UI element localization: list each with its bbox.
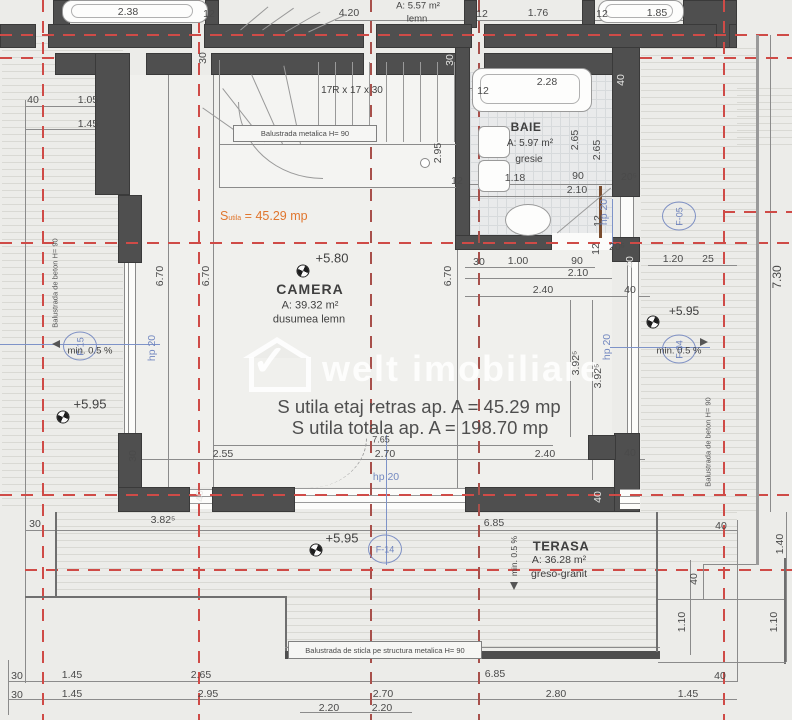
axis-horizontal [0,494,792,496]
dim-label: 2.55 [213,449,233,460]
dim-label: 2.10 [568,268,588,279]
dim-label: 2.95 [433,143,444,163]
dim-label: 40 [593,491,604,503]
level-label-camera: +5.80 [316,252,349,265]
stair-edge [219,60,220,188]
dim-label: 30 [29,519,41,530]
sink [505,204,551,236]
railing-left-label: Balustrada de beton H= 90 [51,238,59,327]
dim-label: 2.38 [118,7,138,18]
dim-line [786,512,787,662]
window-tag-label: F-05 [674,207,684,226]
terrace-edge [784,558,786,664]
terasa-finish: greso-granit [531,569,587,580]
dim-label: 2.65 [570,130,581,150]
dim-label: 1.05 [78,95,98,106]
dim-line [213,75,214,490]
dim-label: 7.65 [372,436,390,445]
dim-label: 2.40 [535,449,555,460]
dim-line [335,20,470,21]
dim-line [470,196,612,197]
dim-label: 20⁵ [621,172,637,183]
dim-label: 1.85 [647,8,667,19]
window-tag-f05: F-05 [662,202,696,231]
wall-segment [118,195,142,263]
bathtub-inner [480,74,580,104]
dim-label: 40 [714,671,726,682]
dim-label: 2.65 [592,140,603,160]
window-bottom-right [620,489,640,509]
wall-segment [212,487,295,512]
dim-line [300,712,412,713]
dim-label: 30 [11,690,23,701]
dim-label: 90 [571,256,583,267]
dim-label: 1.00 [508,256,528,267]
dim-label: 12 [477,86,489,97]
wall-segment [484,24,717,48]
terrace-edge [55,512,57,598]
window-tag-f14: F-14 [368,535,402,564]
terrace-edge [658,599,786,600]
wall-segment [95,53,130,195]
dim-label: 12 [451,176,463,187]
stair-edge [219,187,456,188]
axis-vertical [723,0,725,720]
neighbor-terrace-hatch [737,88,792,150]
slope-note-right: min. 0.5 % [657,346,702,356]
baie-name: BAIE [511,121,542,133]
terasa-area: A: 36.28 m² [532,555,586,566]
dim-label: 1.45 [678,689,698,700]
wall-segment [376,24,472,48]
summary-line-1: S utila etaj retras ap. A = 45.29 mp [277,396,560,418]
dim-label: 12 [476,9,488,20]
dim-line [168,75,169,490]
dim-label: 4.20 [339,8,359,19]
dim-label: 30 [473,257,485,268]
dim-label: 25 [702,254,714,265]
dim-label: 40 [616,74,627,86]
stair-newel [420,158,430,168]
dim-label: 1.45 [62,670,82,681]
dim-label: 30 [128,450,139,462]
dim-label: 40 [625,256,636,268]
dim-label: 2.65 [191,670,211,681]
dim-label: 2.95 [198,689,218,700]
dim-label: 30 [445,54,456,66]
camera-name: CAMERA [276,282,343,296]
terrace-edge [656,512,658,652]
window-tag-label: F-14 [376,544,395,554]
watermark-checkmark: ✓ [252,336,287,385]
axis-horizontal [0,57,57,59]
dim-label: hp 20 [373,472,399,483]
wall-segment [204,24,364,48]
dim-label: 2.20 [372,703,392,714]
s-utila-note: Sutila = 45.29 mp [220,209,308,223]
s-utila-value: = 45.29 mp [245,209,308,223]
dim-label: 40 [689,573,700,585]
baie-area: A: 5.97 m² [507,139,553,149]
axis-horizontal [0,242,792,244]
dim-label: 6.70 [201,266,212,286]
level-label-left: +5.95 [74,398,107,411]
baie-bathtub [472,68,592,112]
dim-label: 1.20 [663,254,683,265]
upper-room-area: A: 5.57 m² [396,1,440,11]
stair-railing-label: Balustrada metalica H= 90 [233,125,377,142]
camera-finish: dusumea lemn [273,315,345,326]
dim-label: 6.70 [443,266,454,286]
dim-label: 12 [596,9,608,20]
dim-line [8,660,9,715]
axis-vertical [198,0,200,720]
dim-label: 2.28 [537,77,557,88]
wall-segment [146,53,192,75]
upper-room-finish: lemn [407,14,428,24]
camera-area: A: 39.32 m² [282,301,339,312]
level-label-right: +5.95 [669,305,699,317]
terrace-edge [25,596,287,598]
dim-label: 3.92⁵ [571,351,582,376]
terrace-edge [703,564,758,565]
slope-note-terasa: min. 0.5 % [510,536,519,576]
stair-spec: 17R x 17 x 30 [321,86,383,96]
dim-label: 30 [11,671,23,682]
window-baie-east [620,197,634,237]
dim-label: hp 20 [599,199,610,225]
dim-line [465,296,650,297]
window-bottom-center [295,488,465,509]
dim-label: hp 20 [147,335,158,361]
summary-line-2: S utila totala ap. A = 198.70 mp [292,417,549,439]
dim-line [465,278,612,279]
dim-label: 3.92⁵ [593,364,604,389]
dim-line [25,530,737,531]
dim-label: 1.76 [528,8,548,19]
slope-note-left: min. 0.5 % [68,346,113,356]
axis-vertical [42,0,44,720]
dim-label: 1.10 [677,612,688,632]
dim-label: 1.45 [78,119,98,130]
axis-horizontal [640,57,792,59]
dim-label: 2.70 [375,449,395,460]
dim-label: 40 [27,95,39,106]
terrace-edge [658,662,786,663]
railing-right-label: Balustrada de beton H= 90 [704,397,712,486]
dim-label: 2.20 [319,703,339,714]
level-label-terasa: +5.95 [326,532,359,545]
wall-segment [582,0,595,25]
wall-segment [0,24,36,48]
dim-label: hp 20 [602,334,613,360]
axis-horizontal [25,569,792,571]
wall-segment [48,24,192,48]
dim-label: 1.18 [505,173,525,184]
dim-label: 40 [195,490,206,502]
terrace-edge [285,596,287,654]
dim-label: 7.30 [771,265,783,288]
dim-label: 3.82⁵ [151,515,176,526]
glass-railing-label: Balustrada de sticla pe structura metali… [288,641,482,659]
dim-line [213,445,553,446]
wall-segment [118,487,190,512]
dim-label: 2.80 [546,689,566,700]
dim-label: 2.40 [533,285,553,296]
window-left-mullion [128,263,129,433]
dim-label: 6.85 [485,669,505,680]
wall-segment [588,435,616,460]
slope-arrow-terasa [510,582,518,590]
axis-horizontal [0,34,792,36]
dim-label: 40 [715,521,727,532]
neighbor-edge [756,35,759,565]
slope-arrow-left [52,340,60,348]
dim-label: 1.10 [769,612,780,632]
toilet [478,126,510,158]
bathtub [598,0,684,23]
dim-label: 40 [624,448,636,459]
dim-label: 6.85 [484,518,504,529]
s-utila-sub: utila [228,215,241,222]
dim-label: 90 [572,171,584,182]
dim-label: 30 [198,52,209,64]
floor-plan: ✓ welt imobiliare F-05 F-15 F-04 F-14 mi… [0,0,792,720]
terasa-name: TERASA [533,540,589,553]
dim-line [8,681,737,682]
wall-segment [729,24,737,48]
watermark-text: welt imobiliare [322,348,602,390]
terrace-edge [703,564,704,600]
dim-label: 12 [591,243,602,255]
dim-label: 20⁵ [609,242,625,253]
dim-label: 2.10 [567,185,587,196]
baie-finish: gresie [515,155,542,165]
dim-label: 6.70 [155,266,166,286]
window-left [124,263,136,433]
slope-arrow-right [700,338,708,346]
dim-label: 12 [203,9,215,20]
dim-label: 1.40 [775,534,786,554]
dim-label: 2.70 [373,689,393,700]
wall-segment [455,47,470,250]
dim-label: 1.45 [62,689,82,700]
dim-label: 40 [624,285,636,296]
stair-edge [219,144,456,145]
dim-line [737,520,738,682]
